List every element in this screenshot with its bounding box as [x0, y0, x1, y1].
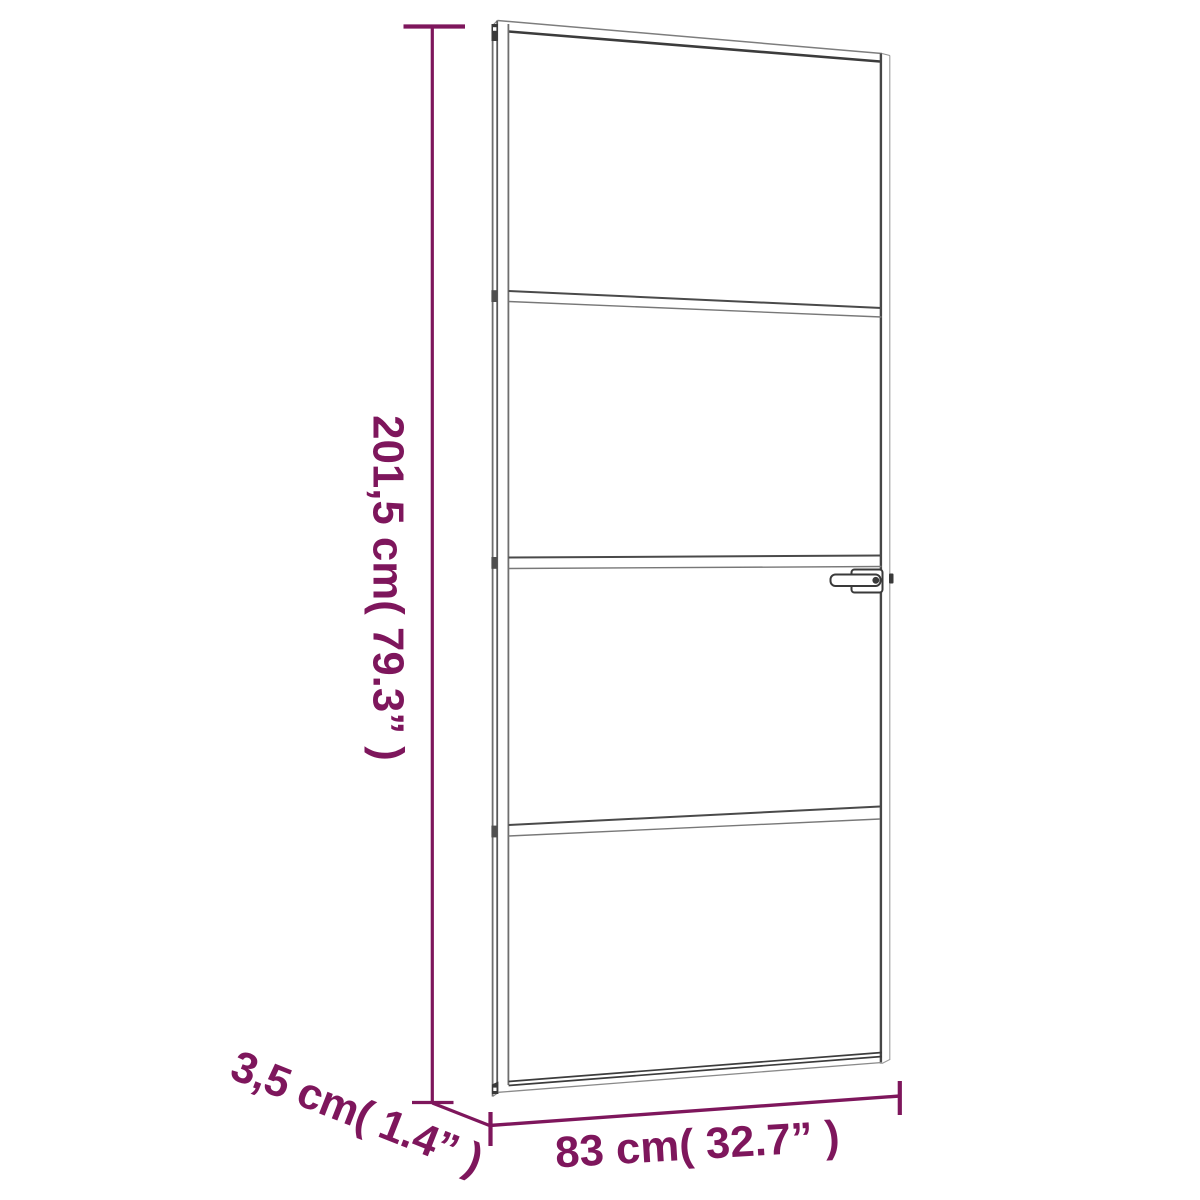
svg-text:201,5 cm( 79.3” ): 201,5 cm( 79.3” )	[364, 415, 413, 761]
